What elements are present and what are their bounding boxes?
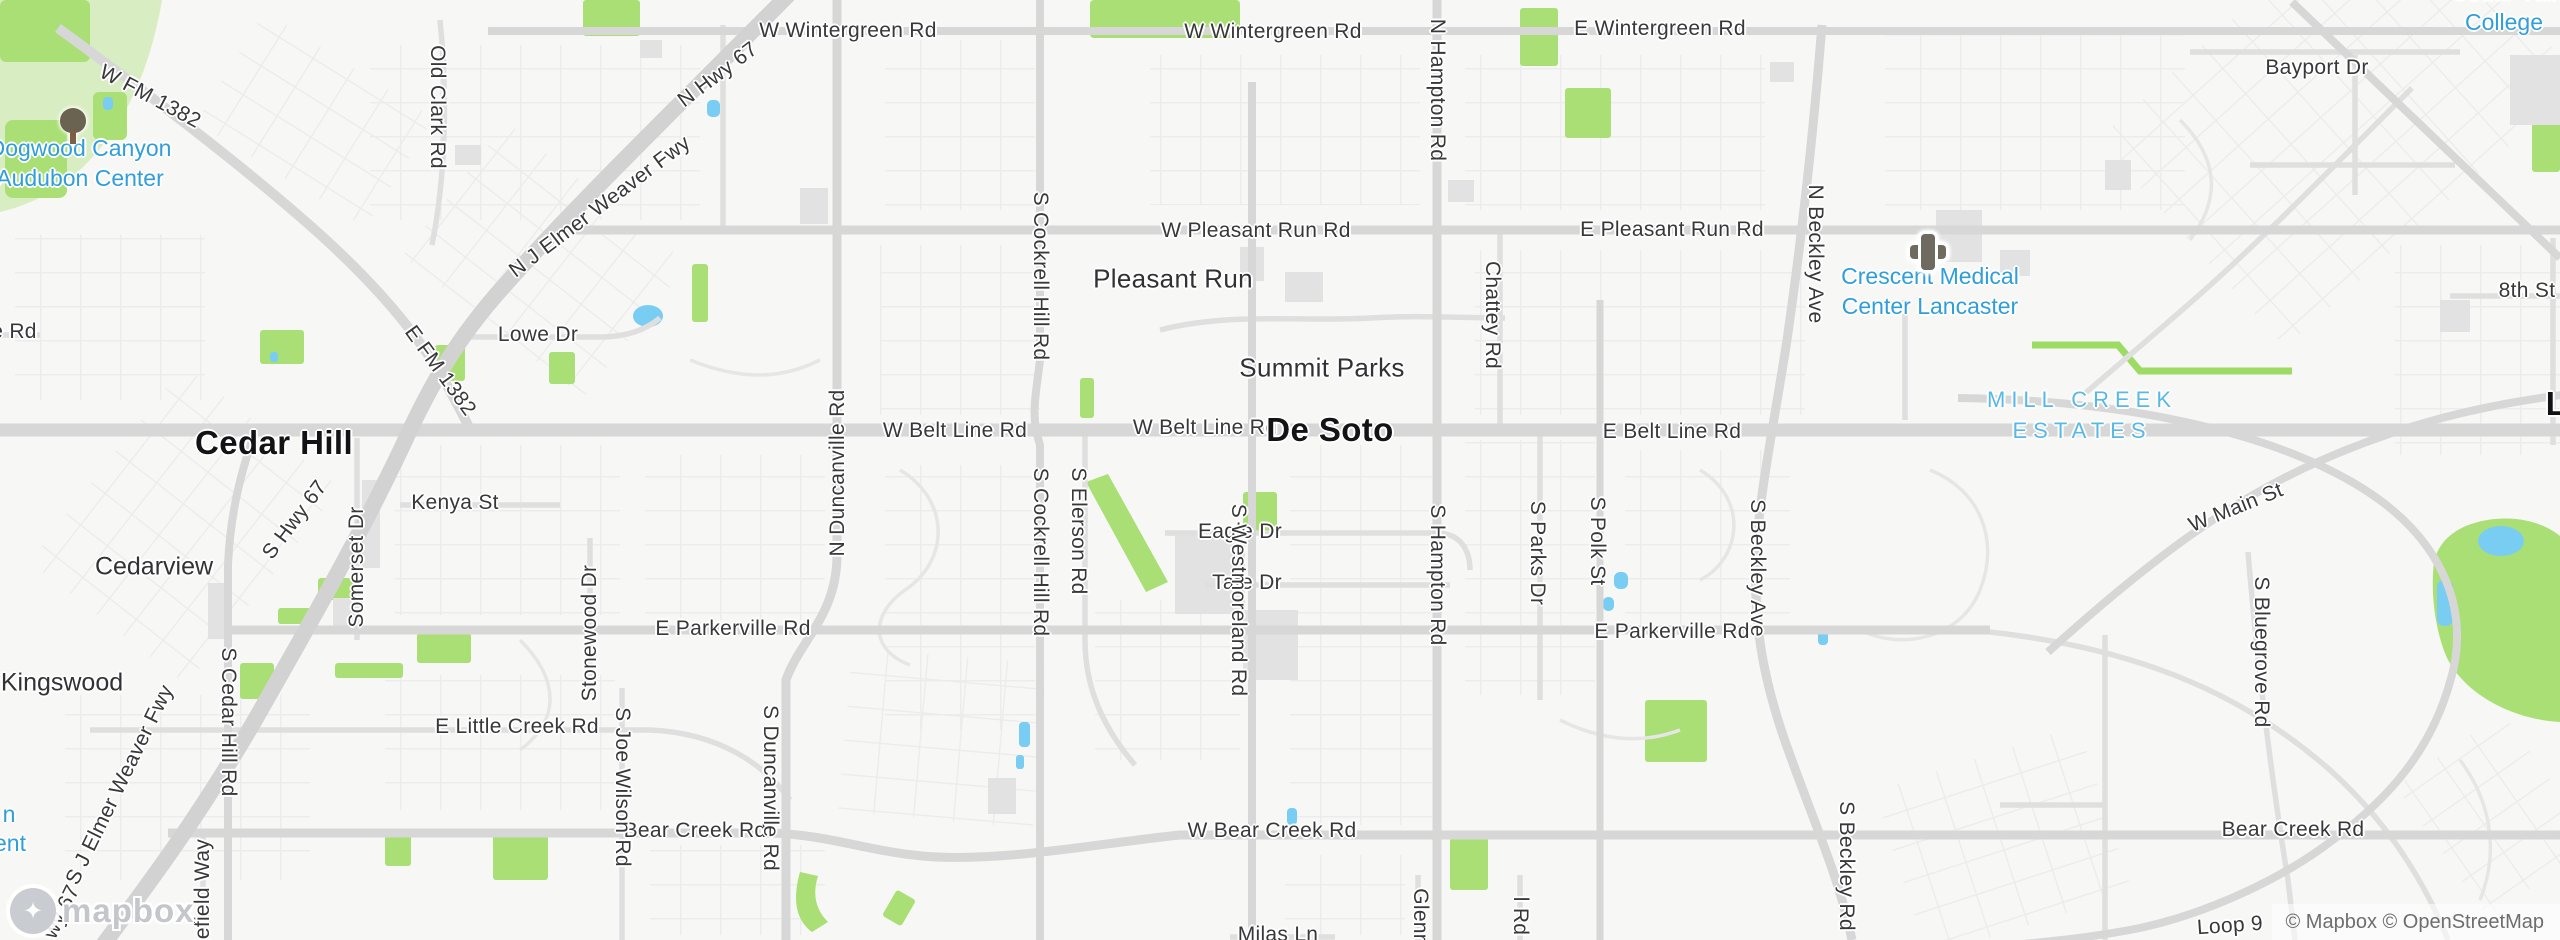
road-stonewood-dr: Stonewood Dr <box>578 565 602 702</box>
hospital-cross-icon <box>1910 234 1946 270</box>
road-bear-creek-1: Bear Creek Rd <box>624 819 767 843</box>
road-old-clark: Old Clark Rd <box>425 45 449 169</box>
map-labels-layer: W Wintergreen RdW Wintergreen RdE Winter… <box>0 0 2560 940</box>
city-cedar-hill: Cedar Hill <box>195 424 353 462</box>
road-e-parkerville-2: E Parkerville Rd <box>1594 620 1749 644</box>
poi-fragment-n: n <box>3 800 16 830</box>
road-s-elerson: S Elerson Rd <box>1066 467 1090 594</box>
map-canvas[interactable]: W Wintergreen RdW Wintergreen RdE Winter… <box>0 0 2560 940</box>
road-s-beckley-ave: S Beckley Ave <box>1745 499 1769 637</box>
city-summit-parks: Summit Parks <box>1239 353 1404 384</box>
road-bear-creek-2: Bear Creek Rd <box>2222 818 2365 842</box>
road-milas-ln: Milas Ln <box>1238 923 1319 940</box>
road-s-westmoreland: S Westmoreland Rd <box>1226 504 1250 697</box>
city-lancaster-fragment: L <box>2546 385 2560 423</box>
road-e-rd-fragment: e Rd <box>0 320 37 344</box>
road-w-belt-line-2: W Belt Line Rd <box>1133 416 1277 440</box>
road-chattey: Chattey Rd <box>1480 261 1504 369</box>
road-bayport-dr: Bayport Dr <box>2265 56 2368 80</box>
road-w-belt-line-1: W Belt Line Rd <box>883 419 1027 443</box>
road-w-wintergreen-1: W Wintergreen Rd <box>759 19 937 43</box>
road-somerset-dr: Somerset Dr <box>345 506 369 627</box>
poi-mill-creek-estates: MILL CREEKESTATES <box>1987 385 2177 447</box>
road-w-bear-creek: W Bear Creek Rd <box>1187 819 1356 843</box>
poi-fragment-ent: ent <box>0 829 26 859</box>
mapbox-logo[interactable]: ✦ mapbox <box>10 888 195 934</box>
road-s-beckley-rd: S Beckley Rd <box>1834 801 1858 931</box>
road-s-parks-dr: S Parks Dr <box>1525 501 1549 606</box>
road-w-main-st: W Main St <box>2185 478 2286 538</box>
city-de-soto: De Soto <box>1266 411 1393 449</box>
road-kenya-st: Kenya St <box>411 491 499 515</box>
city-kingswood: Kingswood <box>1 669 123 698</box>
road-s-bluegrove: S Bluegrove Rd <box>2249 576 2273 727</box>
road-l-rd-fragment: l Rd <box>1508 897 1532 936</box>
road-n-hwy-67: N Hwy 67 <box>673 37 762 112</box>
road-w-fm-1382: W FM 1382 <box>95 60 204 133</box>
road-s-polk-st: S Polk St <box>1585 496 1609 585</box>
road-e-fm-1382: E FM 1382 <box>399 321 480 420</box>
road-e-belt-line: E Belt Line Rd <box>1603 420 1741 444</box>
road-s-joe-wilson: S Joe Wilson Rd <box>610 707 634 867</box>
road-e-wintergreen: E Wintergreen Rd <box>1574 17 1746 41</box>
road-e-little-creek: E Little Creek Rd <box>435 715 599 739</box>
road-n-beckley: N Beckley Ave <box>1803 185 1827 324</box>
road-s-cockrell-hill-1: S Cockrell Hill Rd <box>1028 192 1052 361</box>
road-s-cedar-hill: S Cedar Hill Rd <box>216 647 240 796</box>
road-s-hwy-67: S Hwy 67 <box>258 476 333 564</box>
mapbox-wordmark: mapbox <box>62 892 195 930</box>
poi-crescent-medical-center: Crescent MedicalCenter Lancaster <box>1841 262 2019 322</box>
road-n-hampton: N Hampton Rd <box>1425 19 1449 162</box>
mapbox-badge-icon: ✦ <box>10 888 56 934</box>
park-tree-icon <box>56 108 90 146</box>
poi-cedar-valley-college: Cedar VallCollege <box>2451 0 2557 38</box>
city-cedarview: Cedarview <box>95 553 213 582</box>
attribution[interactable]: © Mapbox © OpenStreetMap <box>2272 904 2560 940</box>
road-s-j-elmer-weaver-fwy: S J Elmer Weaver Fwy <box>61 681 179 888</box>
road-8th-st: 8th St <box>2499 279 2556 303</box>
road-e-pleasant-run: E Pleasant Run Rd <box>1580 218 1764 242</box>
road-n-duncanville: N Duncanville Rd <box>826 389 850 556</box>
city-pleasant-run: Pleasant Run <box>1093 264 1253 295</box>
road-lowe-dr: Lowe Dr <box>498 323 578 347</box>
road-loop-9: Loop 9 <box>2196 912 2264 940</box>
road-s-cockrell-hill-2: S Cockrell Hill Rd <box>1028 468 1052 637</box>
road-s-hampton: S Hampton Rd <box>1425 504 1449 645</box>
road-e-parkerville-1: E Parkerville Rd <box>655 617 810 641</box>
road-glenn-fragment: Glenn <box>1408 888 1432 940</box>
road-n-j-elmer-weaver-fwy: N J Elmer Weaver Fwy <box>505 131 695 283</box>
road-s-duncanville: S Duncanville Rd <box>758 705 782 871</box>
road-w-wintergreen-2: W Wintergreen Rd <box>1184 20 1362 44</box>
road-w-pleasant-run: W Pleasant Run Rd <box>1161 219 1351 243</box>
